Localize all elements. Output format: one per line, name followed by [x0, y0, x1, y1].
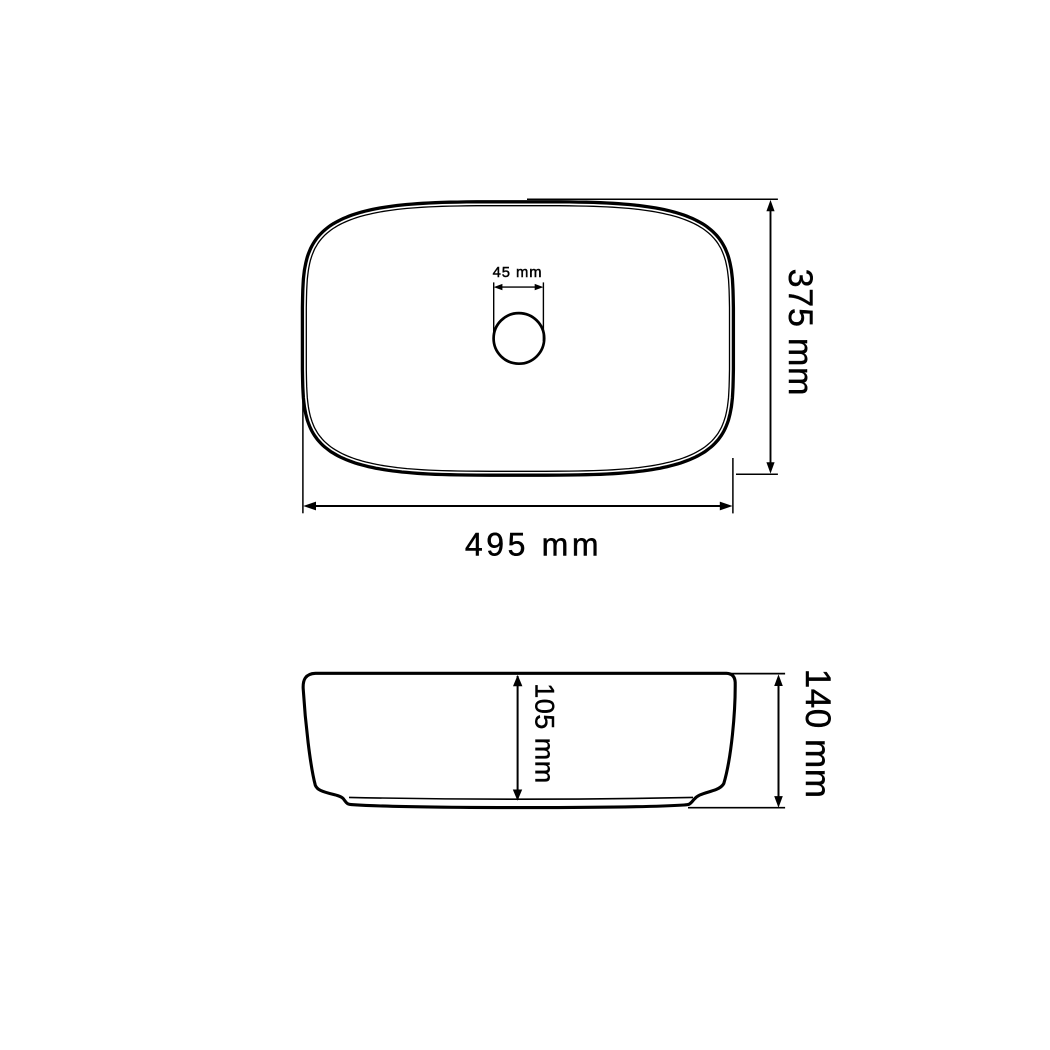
svg-text:105 mm: 105 mm	[530, 683, 560, 784]
svg-text:140 mm: 140 mm	[798, 669, 837, 799]
svg-text:45 mm: 45 mm	[493, 265, 543, 281]
svg-text:375 mm: 375 mm	[781, 269, 819, 397]
svg-text:495 mm: 495 mm	[465, 526, 602, 562]
